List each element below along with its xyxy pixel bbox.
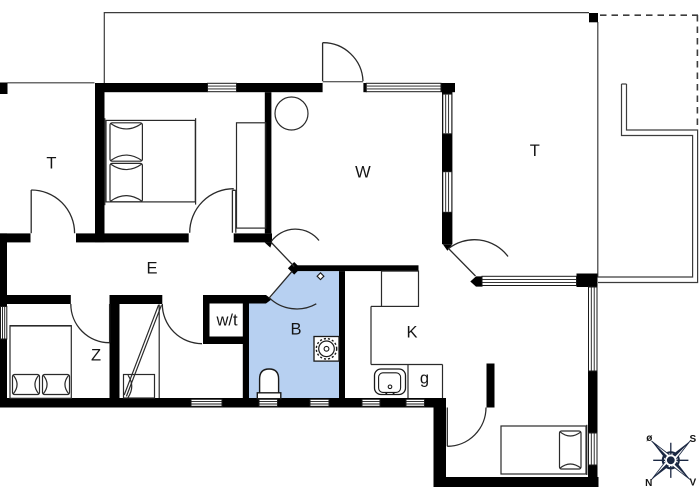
svg-text:S: S: [689, 434, 696, 445]
svg-text:ø: ø: [646, 433, 653, 444]
svg-text:V: V: [689, 477, 696, 488]
svg-text:B: B: [290, 320, 301, 338]
svg-text:w/t: w/t: [215, 312, 238, 330]
svg-text:K: K: [406, 323, 417, 341]
svg-text:T: T: [530, 142, 540, 160]
svg-text:N: N: [645, 478, 652, 489]
svg-text:E: E: [146, 260, 157, 278]
svg-text:g: g: [420, 369, 429, 387]
svg-text:T: T: [46, 155, 56, 173]
svg-text:Z: Z: [91, 347, 101, 365]
svg-text:W: W: [355, 164, 371, 182]
